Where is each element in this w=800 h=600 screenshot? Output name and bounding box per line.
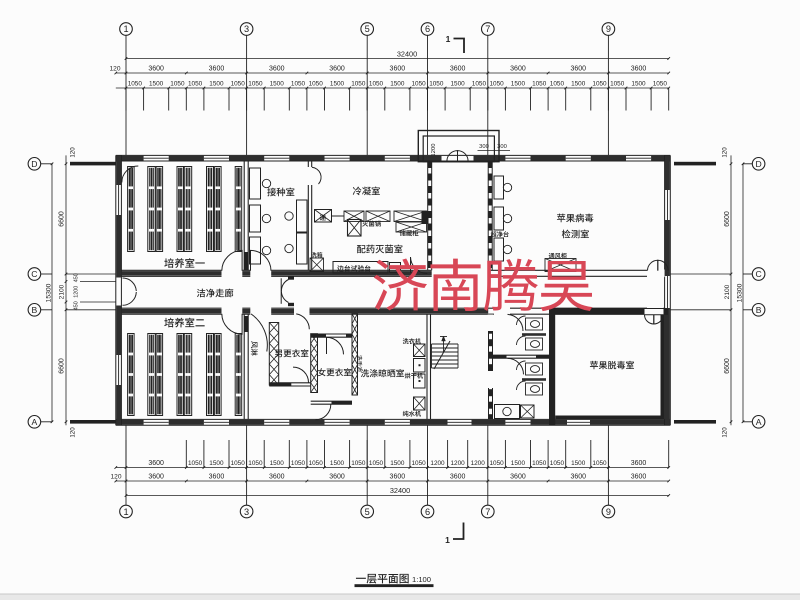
svg-text:1200: 1200 [471,460,486,467]
svg-text:9: 9 [606,24,611,34]
svg-text:1050: 1050 [231,460,246,467]
svg-text:300: 300 [479,144,489,150]
svg-text:300: 300 [497,144,507,150]
svg-text:3600: 3600 [570,474,586,481]
svg-text:3: 3 [244,24,249,34]
svg-text:C: C [31,269,37,279]
svg-text:3600: 3600 [570,66,586,73]
svg-text:6600: 6600 [724,211,731,227]
svg-text:1050: 1050 [291,460,306,467]
svg-text:1050: 1050 [610,81,625,88]
svg-text:6: 6 [425,507,430,517]
svg-text:5: 5 [365,507,370,517]
svg-text:3600: 3600 [631,66,647,73]
svg-text:3600: 3600 [269,66,285,73]
svg-text:A: A [756,417,762,427]
svg-text:1050: 1050 [653,81,668,88]
svg-text:3600: 3600 [450,474,466,481]
svg-text:1050: 1050 [309,81,324,88]
svg-text:1050: 1050 [188,81,203,88]
svg-text:15300: 15300 [46,283,53,302]
svg-text:120: 120 [109,66,120,73]
svg-text:1500: 1500 [330,81,345,88]
svg-text:1050: 1050 [411,460,426,467]
svg-text:3600: 3600 [269,474,285,481]
svg-text:D: D [31,159,37,169]
svg-text:1050: 1050 [592,81,607,88]
svg-text:3600: 3600 [209,474,225,481]
svg-text:120: 120 [70,427,77,438]
svg-text:A: A [32,417,38,427]
svg-text:120: 120 [110,474,121,481]
svg-text:1500: 1500 [390,81,405,88]
svg-text:1500: 1500 [270,460,285,467]
svg-text:1050: 1050 [429,81,444,88]
svg-text:120: 120 [722,427,729,438]
svg-text:3600: 3600 [450,66,466,73]
svg-text:1050: 1050 [188,460,203,467]
svg-text:1050: 1050 [592,460,607,467]
svg-text:3600: 3600 [390,66,406,73]
svg-text:3600: 3600 [631,460,647,467]
svg-text:6600: 6600 [724,358,731,374]
svg-text:7: 7 [485,24,490,34]
svg-text:7: 7 [485,507,490,517]
svg-text:3600: 3600 [148,66,164,73]
svg-text:1050: 1050 [472,81,487,88]
svg-text:6: 6 [425,24,430,34]
svg-text:1050: 1050 [411,81,426,88]
svg-text:3600: 3600 [510,66,526,73]
svg-text:1500: 1500 [209,81,224,88]
svg-text:1500: 1500 [571,460,586,467]
svg-text:1200: 1200 [430,460,445,467]
svg-text:1500: 1500 [511,81,526,88]
svg-text:1: 1 [123,507,128,517]
svg-text:450: 450 [74,273,80,282]
svg-text:1050: 1050 [231,81,246,88]
svg-text:120: 120 [70,147,77,158]
svg-text:B: B [32,305,38,315]
svg-text:1050: 1050 [489,460,504,467]
svg-text:1500: 1500 [571,81,586,88]
svg-text:1:100: 1:100 [412,575,431,584]
svg-text:1050: 1050 [309,460,324,467]
svg-text:3600: 3600 [631,474,647,481]
svg-text:120: 120 [722,147,729,158]
svg-text:6600: 6600 [59,358,66,374]
svg-text:1050: 1050 [369,81,384,88]
svg-text:32400: 32400 [397,50,417,59]
svg-text:2100: 2100 [724,284,731,299]
svg-text:1050: 1050 [128,81,143,88]
svg-text:3600: 3600 [148,460,164,467]
svg-text:1500: 1500 [511,460,526,467]
svg-text:2100: 2100 [59,284,66,299]
svg-text:1500: 1500 [149,81,164,88]
svg-text:D: D [755,159,761,169]
svg-text:1050: 1050 [369,460,384,467]
svg-text:1050: 1050 [550,460,565,467]
svg-text:5: 5 [365,24,370,34]
svg-text:3600: 3600 [390,474,406,481]
svg-text:9: 9 [606,507,611,517]
svg-text:6600: 6600 [59,211,66,227]
svg-text:1050: 1050 [550,81,565,88]
svg-text:1050: 1050 [351,81,366,88]
svg-text:1050: 1050 [248,460,263,467]
svg-text:1500: 1500 [330,460,345,467]
svg-text:1050: 1050 [532,81,547,88]
svg-text:1500: 1500 [270,81,285,88]
svg-text:C: C [755,269,761,279]
svg-text:3600: 3600 [209,66,225,73]
svg-text:15300: 15300 [737,283,744,302]
svg-text:3600: 3600 [148,474,164,481]
svg-text:3600: 3600 [329,474,345,481]
svg-text:1050: 1050 [248,81,263,88]
svg-text:B: B [756,305,762,315]
svg-text:1500: 1500 [631,81,646,88]
svg-text:1200: 1200 [74,286,80,298]
svg-text:3: 3 [244,507,249,517]
svg-text:32400: 32400 [390,486,410,495]
svg-text:1500: 1500 [209,460,224,467]
svg-text:1050: 1050 [351,460,366,467]
svg-text:1050: 1050 [291,81,306,88]
svg-text:3600: 3600 [510,474,526,481]
svg-text:1200: 1200 [431,144,437,157]
svg-text:1200: 1200 [450,460,465,467]
svg-text:1: 1 [445,535,450,545]
svg-text:3600: 3600 [329,66,345,73]
svg-text:1500: 1500 [450,81,465,88]
svg-text:1: 1 [123,24,128,34]
svg-text:1050: 1050 [532,460,547,467]
svg-text:1050: 1050 [170,81,185,88]
svg-text:1500: 1500 [390,460,405,467]
svg-text:450: 450 [74,301,80,310]
svg-text:1050: 1050 [489,81,504,88]
svg-text:1: 1 [446,34,451,44]
